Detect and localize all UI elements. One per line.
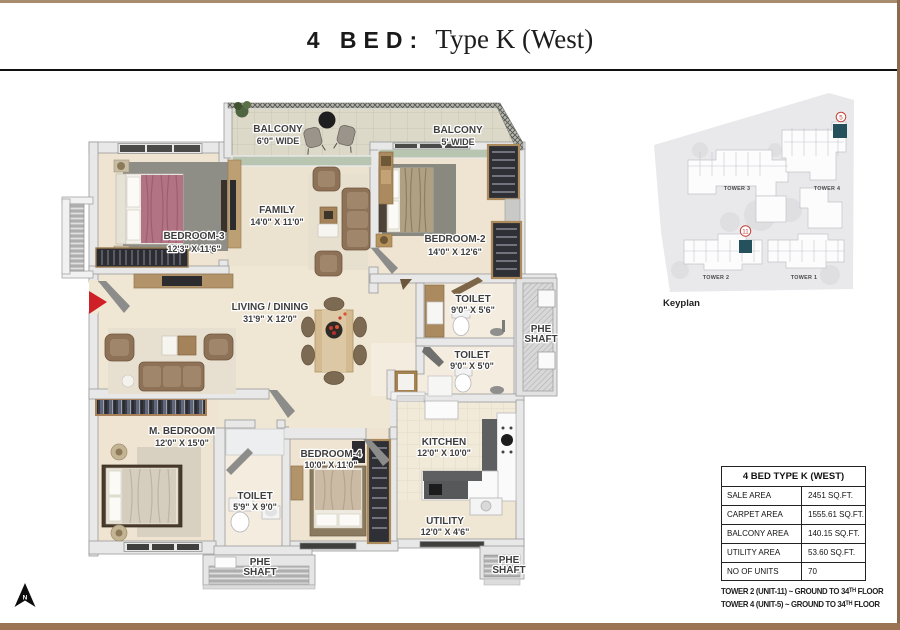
svg-text:BALCONY: BALCONY — [253, 124, 303, 135]
svg-text:SHAFT: SHAFT — [524, 334, 557, 345]
svg-text:TOILET: TOILET — [237, 491, 272, 502]
svg-text:5' WIDE: 5' WIDE — [441, 137, 474, 147]
svg-text:9'0" X 5'0": 9'0" X 5'0" — [450, 361, 494, 371]
svg-text:9'0" X 5'6": 9'0" X 5'6" — [451, 305, 495, 315]
svg-text:12'3" X 11'6": 12'3" X 11'6" — [167, 244, 220, 254]
svg-text:N: N — [23, 595, 28, 602]
svg-text:SHAFT: SHAFT — [243, 567, 276, 578]
svg-text:TOWER 3: TOWER 3 — [724, 186, 751, 192]
svg-text:TOILET: TOILET — [454, 350, 489, 361]
svg-text:UTILITY: UTILITY — [426, 516, 464, 527]
svg-text:12'0" X 15'0": 12'0" X 15'0" — [155, 438, 209, 448]
svg-text:LIVING / DINING: LIVING / DINING — [232, 302, 309, 313]
svg-text:6'0" WIDE: 6'0" WIDE — [257, 136, 299, 146]
svg-text:TOWER 4: TOWER 4 — [814, 186, 841, 192]
svg-text:BEDROOM-4: BEDROOM-4 — [300, 449, 362, 460]
svg-text:FAMILY: FAMILY — [259, 205, 295, 216]
svg-text:14'0" X 12'6": 14'0" X 12'6" — [428, 247, 482, 257]
svg-text:11: 11 — [742, 229, 749, 236]
svg-text:TOILET: TOILET — [455, 294, 490, 305]
svg-text:12'0" X 10'0": 12'0" X 10'0" — [417, 448, 471, 458]
svg-text:SHAFT: SHAFT — [492, 565, 525, 576]
svg-text:10'0" X 11'0": 10'0" X 11'0" — [304, 460, 357, 470]
svg-text:12'0" X 4'6": 12'0" X 4'6" — [421, 527, 470, 537]
svg-text:5'9" X 9'0": 5'9" X 9'0" — [233, 502, 277, 512]
svg-text:BEDROOM-2: BEDROOM-2 — [424, 234, 486, 245]
svg-text:31'9" X 12'0": 31'9" X 12'0" — [243, 314, 297, 324]
svg-text:KITCHEN: KITCHEN — [422, 437, 466, 448]
svg-text:TOWER 2: TOWER 2 — [703, 275, 730, 281]
svg-text:M. BEDROOM: M. BEDROOM — [149, 426, 215, 437]
svg-text:TOWER 1: TOWER 1 — [791, 275, 818, 281]
svg-text:BALCONY: BALCONY — [433, 125, 483, 136]
svg-text:14'0" X 11'0": 14'0" X 11'0" — [250, 217, 303, 227]
svg-text:5: 5 — [839, 115, 843, 122]
svg-text:BEDROOM-3: BEDROOM-3 — [163, 231, 225, 242]
